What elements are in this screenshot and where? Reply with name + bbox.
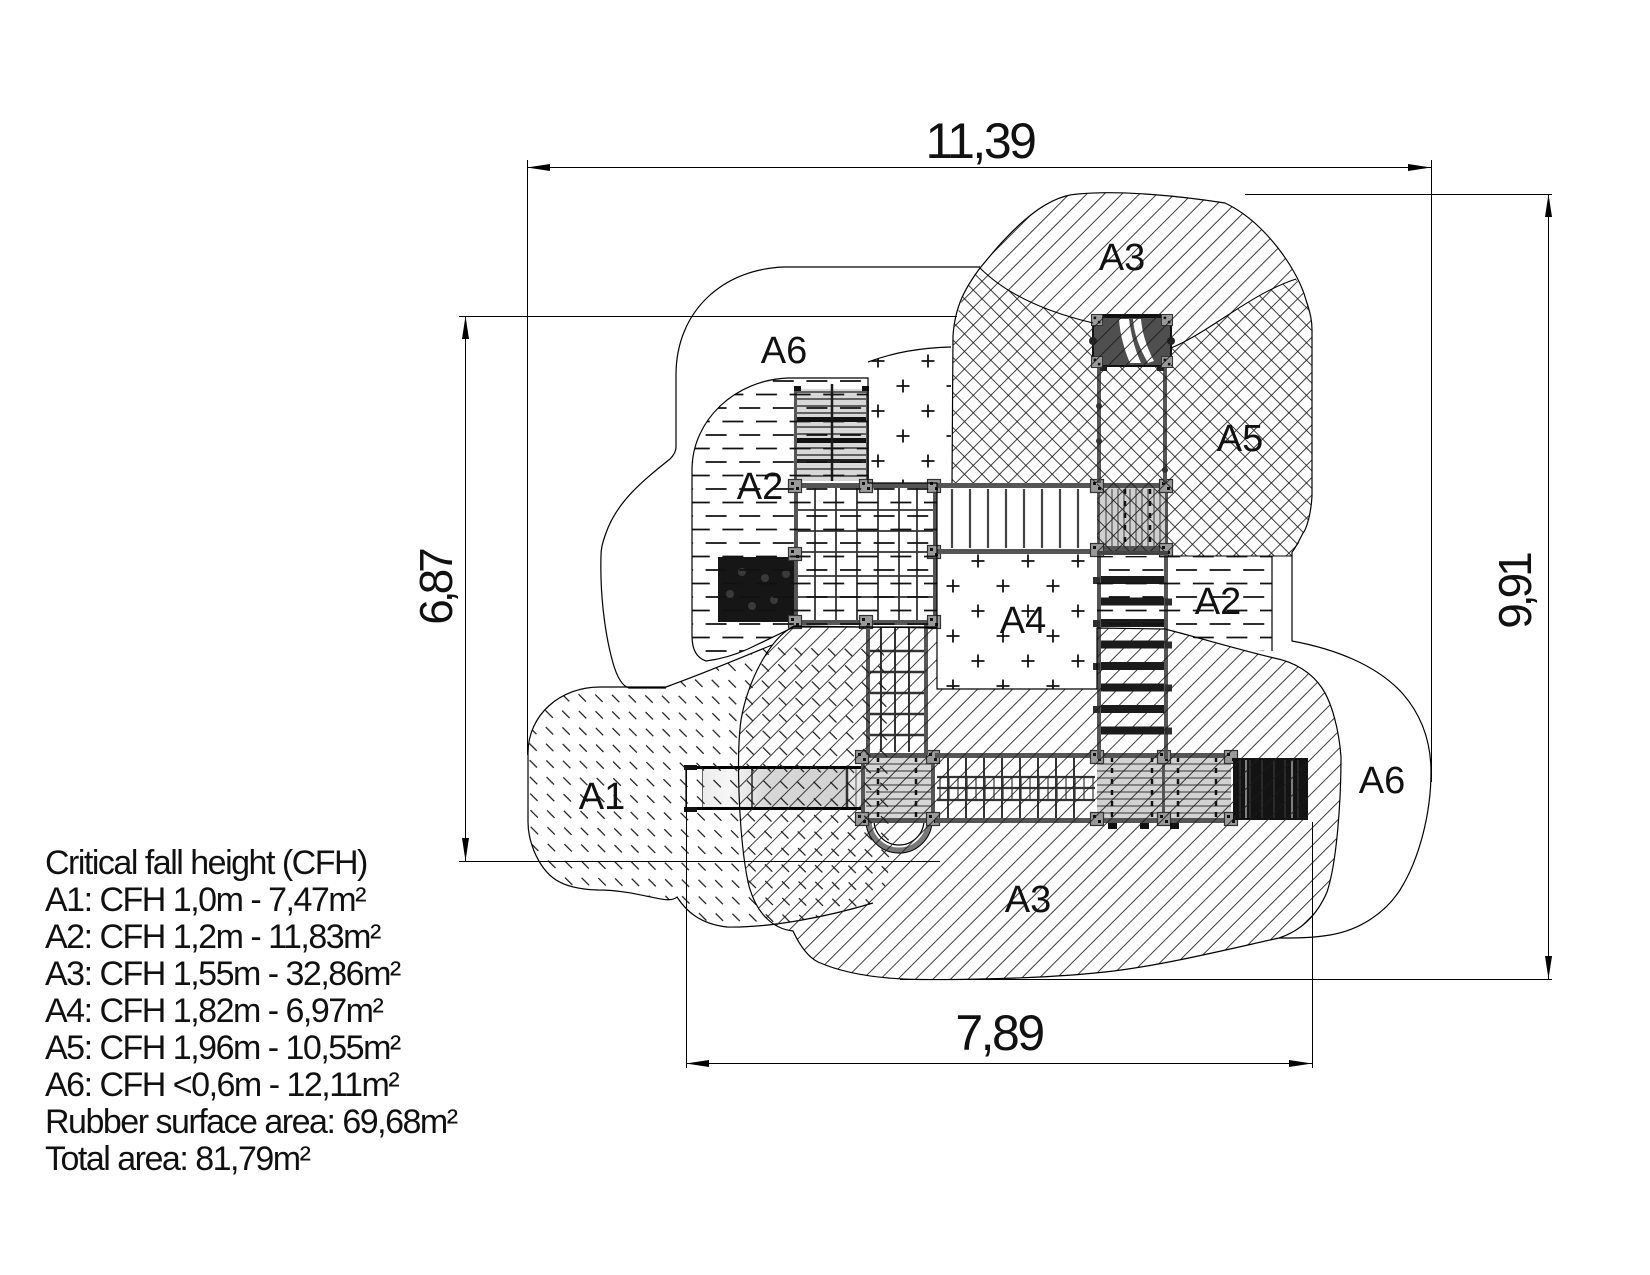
svg-text:A4: A4 — [1000, 600, 1046, 642]
svg-text:A2: A2 — [1195, 581, 1241, 623]
svg-text:A1: A1 — [579, 776, 625, 818]
svg-text:6,87: 6,87 — [410, 549, 462, 625]
svg-text:7,89: 7,89 — [955, 1005, 1043, 1061]
svg-text:11,39: 11,39 — [926, 113, 1036, 169]
svg-text:A6: A6 — [761, 330, 807, 372]
svg-text:A3: A3 — [1099, 237, 1145, 279]
svg-text:A3: A3 — [1005, 879, 1051, 921]
svg-text:A5: A5 — [1217, 418, 1263, 460]
svg-text:9,91: 9,91 — [1489, 553, 1541, 629]
svg-text:A6: A6 — [1359, 760, 1405, 802]
svg-text:A2: A2 — [737, 466, 783, 508]
